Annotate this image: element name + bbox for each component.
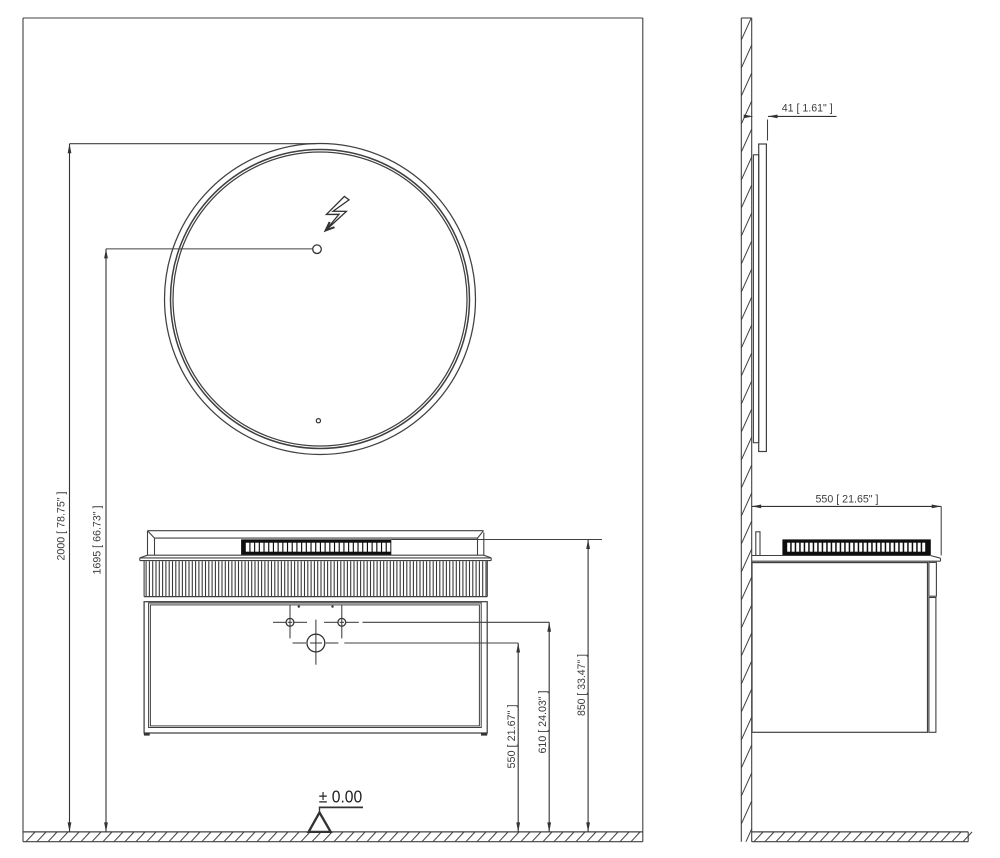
svg-text:1695 [ 66.73" ]: 1695 [ 66.73" ]	[92, 506, 104, 575]
svg-text:41 [ 1.61" ]: 41 [ 1.61" ]	[782, 103, 833, 115]
svg-text:610 [ 24.03" ]: 610 [ 24.03" ]	[537, 691, 549, 754]
svg-text:2000 [ 78.75" ]: 2000 [ 78.75" ]	[56, 492, 68, 561]
svg-text:550 [ 21.65" ]: 550 [ 21.65" ]	[816, 494, 879, 506]
svg-text:± 0.00: ± 0.00	[319, 787, 363, 807]
svg-text:550 [ 21.67" ]: 550 [ 21.67" ]	[506, 705, 518, 769]
svg-text:850 [ 33.47" ]: 850 [ 33.47" ]	[576, 654, 588, 716]
